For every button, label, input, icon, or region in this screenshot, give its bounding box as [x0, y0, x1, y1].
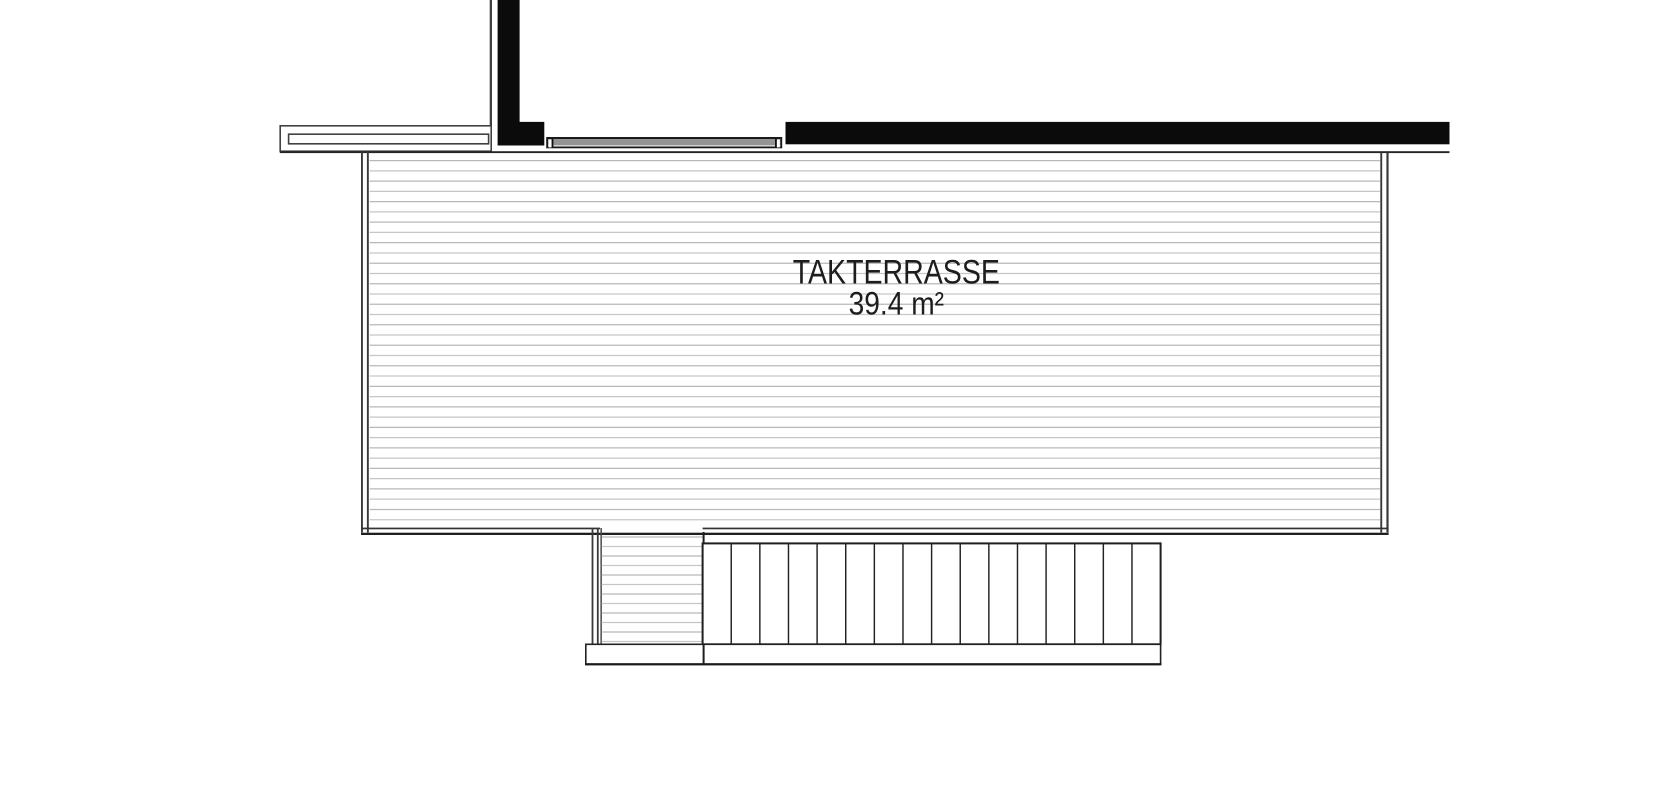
svg-text:TAKTERRASSE: TAKTERRASSE: [793, 253, 1000, 291]
svg-text:39.4 m²: 39.4 m²: [849, 287, 944, 322]
